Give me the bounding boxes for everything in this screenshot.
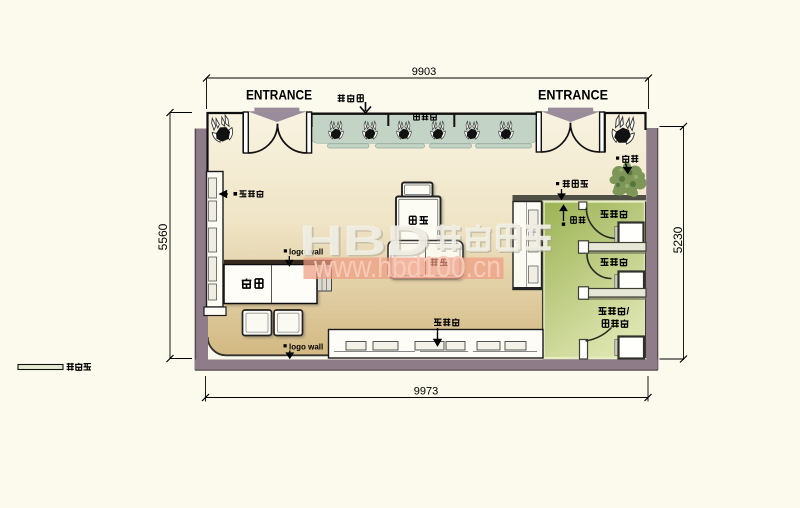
svg-text:9903: 9903 (412, 66, 436, 78)
svg-text:/: / (627, 307, 630, 318)
svg-text:9973: 9973 (414, 386, 438, 398)
svg-text:5560: 5560 (156, 223, 170, 250)
svg-text:HBD: HBD (299, 217, 430, 265)
svg-text:logo wall: logo wall (289, 343, 323, 352)
svg-text:ENTRANCE: ENTRANCE (538, 88, 608, 103)
svg-text:5230: 5230 (671, 226, 685, 253)
svg-text:ENTRANCE: ENTRANCE (246, 88, 312, 103)
